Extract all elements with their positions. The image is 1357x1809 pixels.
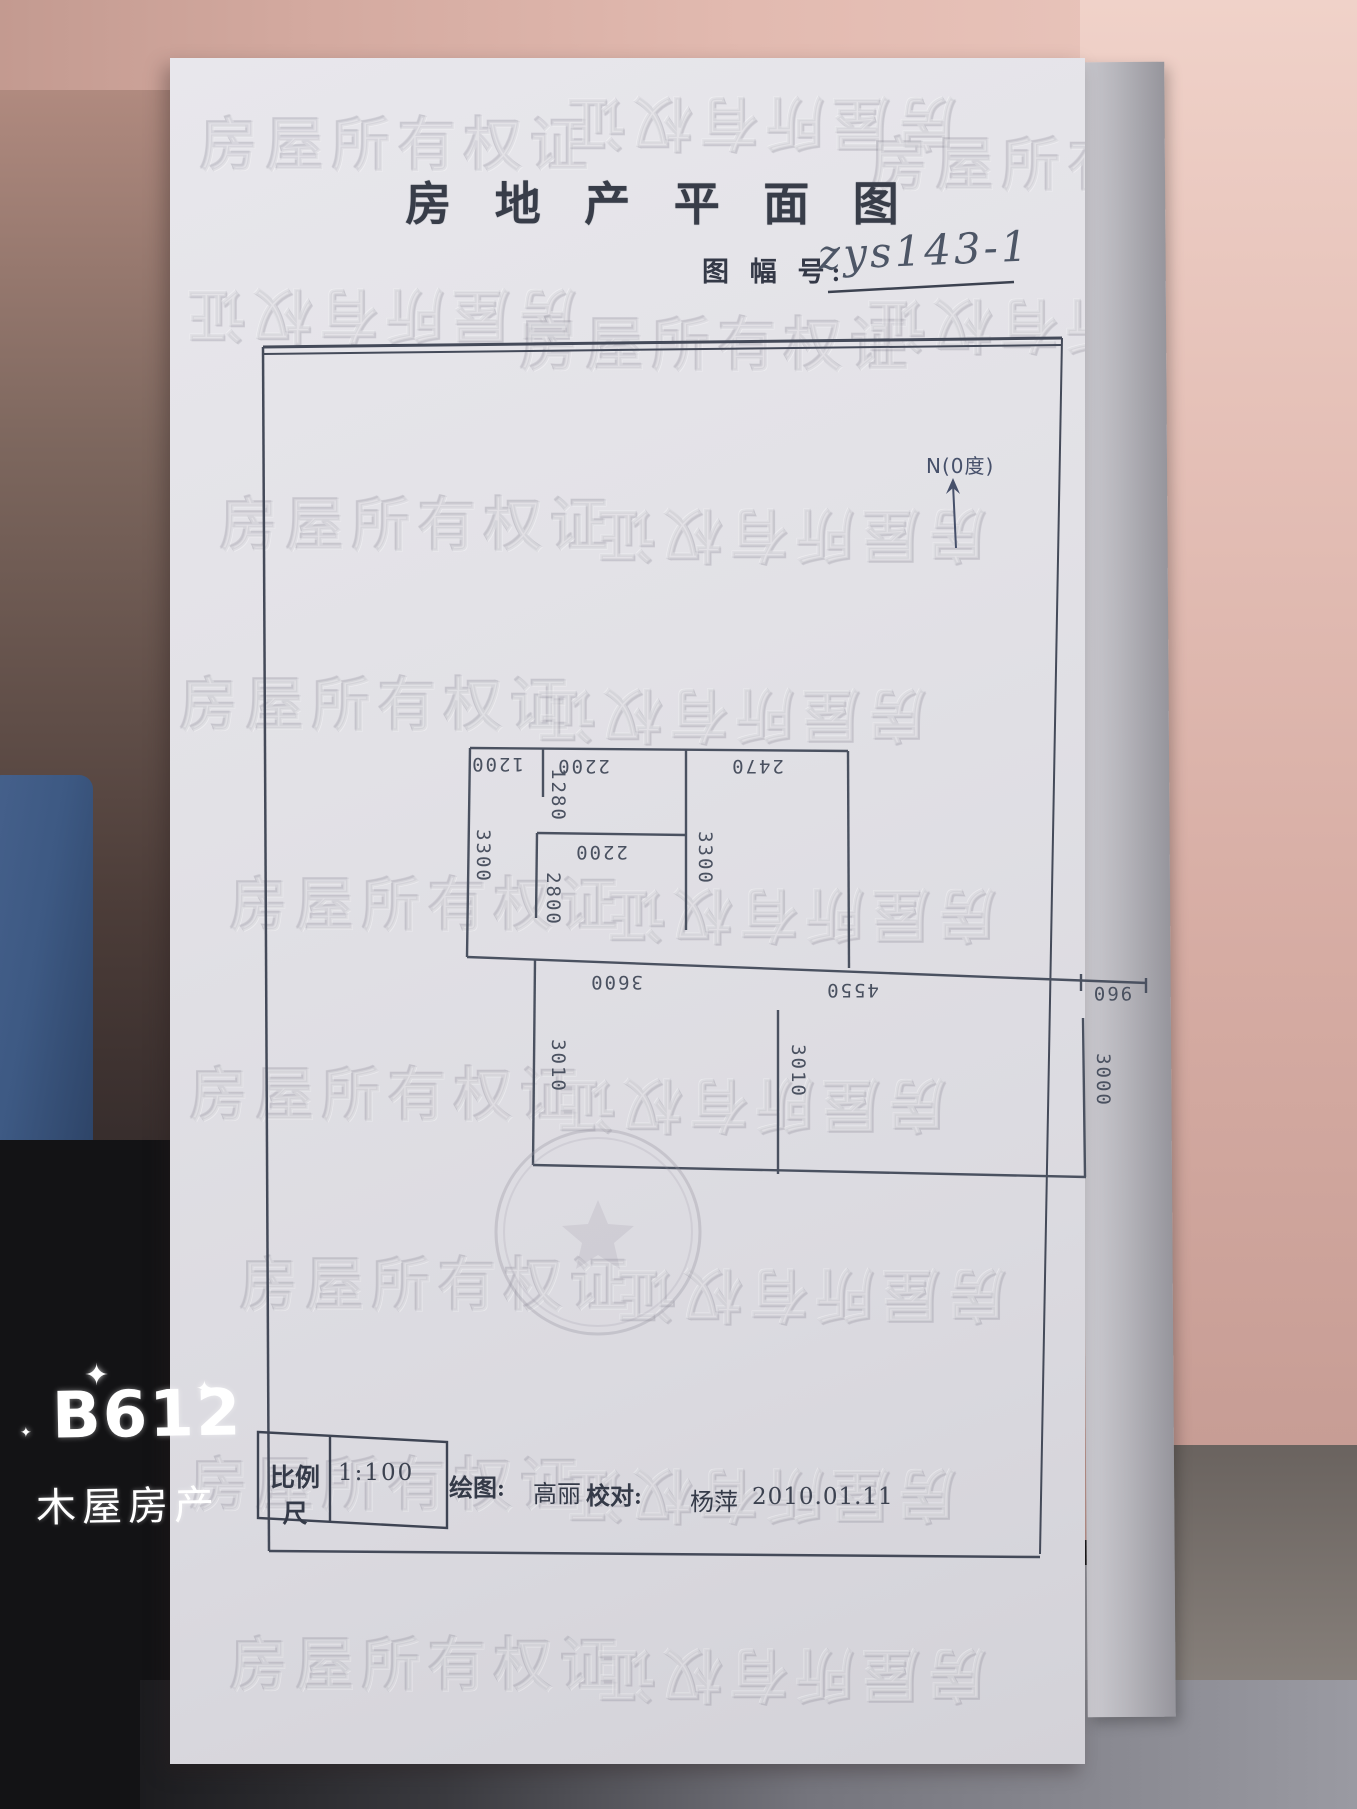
- security-watermark: 房屋所有权证: [230, 858, 626, 942]
- security-watermark: 房屋所有权证: [600, 878, 996, 962]
- security-watermark: 房屋所有权证: [230, 1618, 626, 1702]
- sparkle-icon: ✦: [196, 1376, 213, 1401]
- security-watermark: 房屋所有权证: [590, 498, 986, 582]
- security-watermark: 房屋所有权证: [190, 1048, 586, 1132]
- drawn-by-name: 高丽: [533, 1474, 581, 1509]
- sparkle-icon: ✦: [84, 1358, 109, 1393]
- checked-by-label: 校对:: [586, 1476, 642, 1511]
- north-arrow-label: N(0度): [926, 450, 994, 479]
- security-watermark: 房屋所有权证: [240, 1238, 636, 1322]
- security-watermark: 房屋所有权证: [530, 678, 926, 762]
- security-watermark: 房屋所有权证: [520, 298, 916, 382]
- security-watermark: 房屋所有权证: [610, 1258, 1006, 1342]
- sheet-number-handwritten-value: zys143-1: [817, 221, 1031, 279]
- agency-brand-caption: 木屋房产: [36, 1472, 221, 1533]
- scale-value: 1:100: [338, 1460, 414, 1486]
- booklet-next-page-edge: [1076, 62, 1176, 1718]
- document-title: 房 地 产 平 面 图: [400, 168, 920, 234]
- security-watermark: 房屋所有权证: [860, 288, 1085, 372]
- security-watermark: 房屋所有权证: [180, 658, 576, 742]
- date-value: 2010.01.11: [752, 1484, 894, 1510]
- scale-label: 比例尺: [262, 1458, 328, 1530]
- drawn-by-label: 绘图:: [449, 1468, 505, 1503]
- security-watermark: 房屋所有权证: [220, 478, 616, 562]
- camera-app-watermark: B612: [51, 1376, 243, 1453]
- security-watermark: 房屋所有权证: [550, 1068, 946, 1152]
- photo-of-floorplan-document: 房屋所有权证 房屋所有权证 房屋所有权证 房屋所有权证 房屋所有权证 房屋所有权…: [0, 0, 1357, 1809]
- blue-object-left: [0, 775, 93, 1195]
- sparkle-icon: ✦: [20, 1424, 32, 1441]
- security-watermark: 房屋所有权证: [590, 1638, 986, 1722]
- checked-by-name: 杨萍: [690, 1482, 738, 1517]
- security-watermark: 房屋所有权证: [180, 278, 576, 362]
